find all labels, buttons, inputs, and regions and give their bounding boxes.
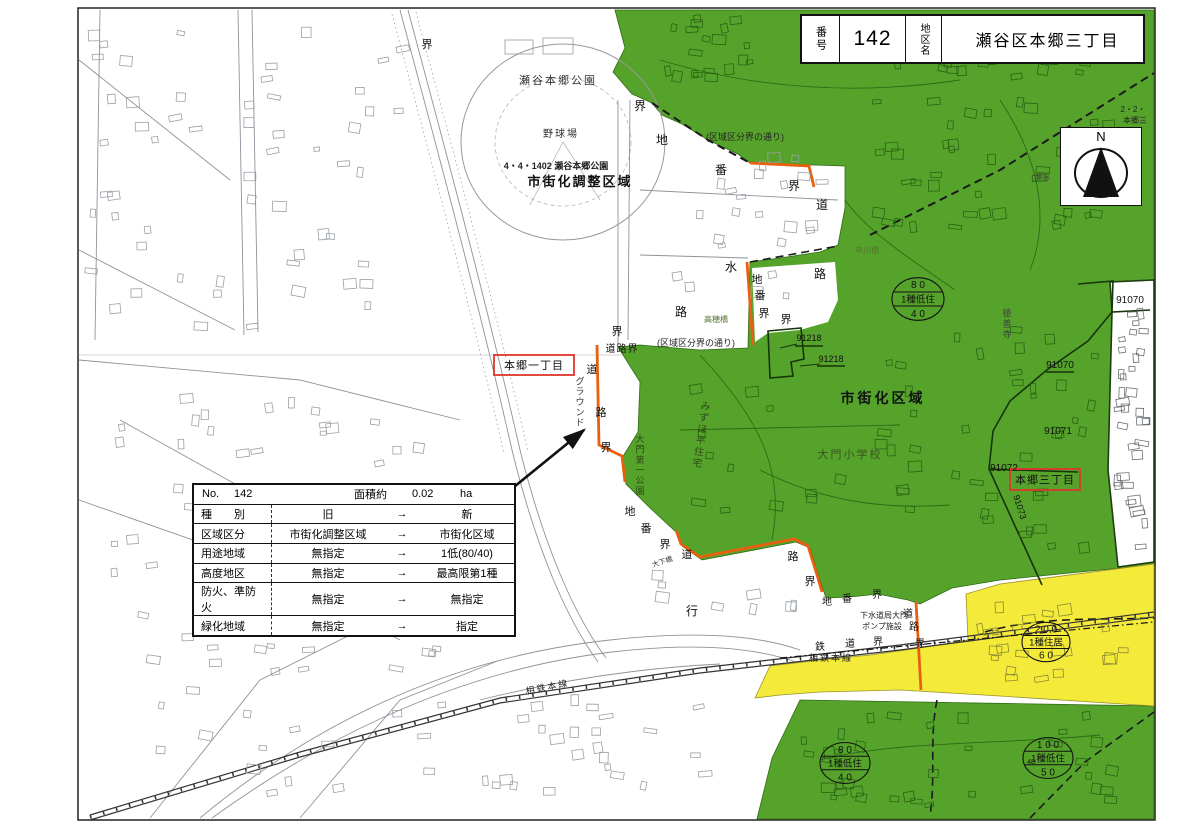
row-old-value: 無指定 xyxy=(272,616,384,635)
arrow-glyph: → xyxy=(384,544,420,563)
map-label: 91070 xyxy=(1116,295,1144,306)
arrow-glyph: → xyxy=(384,564,420,583)
map-sheet: 8 01種低住4 02 0 01種住居6 08 01種低住4 01 0 01種低… xyxy=(0,0,1200,829)
zoning-circle-text: 1種住居 xyxy=(1029,637,1063,649)
map-label: 番 xyxy=(755,289,766,302)
map-label: 道 xyxy=(903,607,913,620)
zoning-circle-text: 4 0 xyxy=(838,772,852,783)
map-label: 91070 xyxy=(1046,360,1074,371)
map-label: 界 xyxy=(660,538,671,551)
zoning-circle-text: 1種低住 xyxy=(828,758,862,770)
map-label: 野球場 xyxy=(543,127,579,140)
arrow-glyph: → xyxy=(384,524,420,543)
row-old-value: 無指定 xyxy=(272,583,384,615)
table-row: 種 別旧→新 xyxy=(194,504,514,524)
map-label: 界 xyxy=(805,575,816,588)
map-label: 地 xyxy=(822,595,832,608)
table-row-header: No.142面積約0.02ha xyxy=(194,485,514,504)
map-label: 徳善寺 xyxy=(1002,308,1011,340)
map-label: 番 xyxy=(641,522,652,535)
map-label: 番 xyxy=(715,163,727,177)
table-row: 防火、準防火無指定→無指定 xyxy=(194,582,514,615)
map-label: 界 xyxy=(759,307,770,320)
map-label: 路 xyxy=(788,550,799,563)
map-label: 道 xyxy=(682,547,693,561)
map-label: 2・2・ xyxy=(1121,105,1146,114)
map-label: 市街化区域 xyxy=(841,390,926,406)
map-label: 界 xyxy=(634,99,646,113)
map-label: 91218 xyxy=(796,333,821,343)
zoning-circle-text: 1種低住 xyxy=(901,294,935,306)
map-label: グラウンド xyxy=(575,375,584,427)
map-label: 界 xyxy=(422,38,433,51)
map-label: 下水道局大門 xyxy=(860,610,908,620)
map-label: (区域区分界の通り) xyxy=(706,131,784,142)
map-label: 91071 xyxy=(1044,426,1072,437)
map-label: 地 xyxy=(625,505,636,518)
row-new-value: 指定 xyxy=(420,616,514,635)
row-old-value: 無指定 xyxy=(272,544,384,563)
table-no-label: No. xyxy=(194,485,234,504)
map-label: 相鉄本線 xyxy=(809,652,853,663)
row-label: 用途地域 xyxy=(194,544,272,563)
map-label: 市街化調整区域 xyxy=(527,174,632,189)
zoning-change-table: No.142面積約0.02ha種 別旧→新区域区分市街化調整区域→市街化区域用途… xyxy=(192,483,516,637)
map-label: 48 xyxy=(1027,759,1035,766)
map-label: 界 xyxy=(872,589,882,601)
table-area-value: 0.02 xyxy=(412,485,460,504)
table-row: 区域区分市街化調整区域→市街化区域 xyxy=(194,523,514,543)
zoning-circle-text: 8 0 xyxy=(838,745,852,756)
map-label: 界 xyxy=(788,179,800,193)
north-arrow-icon xyxy=(1061,128,1141,204)
map-label: 瀬谷本郷公園 xyxy=(519,73,597,87)
row-label: 種 別 xyxy=(194,505,272,524)
zoning-circle-text: 8 0 xyxy=(911,280,925,291)
row-label: 区域区分 xyxy=(194,524,272,543)
row-new-value: 新 xyxy=(420,505,514,524)
placename-red-box-label: 本郷三丁目 xyxy=(1015,473,1075,487)
urbanization-zone-green-south xyxy=(757,700,1154,819)
title-number-label: 番号 xyxy=(802,16,840,62)
map-label: ポンプ施設 xyxy=(862,621,902,631)
row-new-value: 最高限第1種 xyxy=(420,564,514,583)
map-canvas: 8 01種低住4 02 0 01種住居6 08 01種低住4 01 0 01種低… xyxy=(0,0,1200,829)
map-label: 地 xyxy=(656,133,668,147)
zoning-circle-text: 4 0 xyxy=(911,309,925,320)
title-number-value: 142 xyxy=(840,16,906,62)
map-label: 本郷三 xyxy=(1123,115,1147,125)
map-label: 道 xyxy=(845,637,855,650)
map-label: 道 xyxy=(587,362,598,376)
map-label: 道路界 xyxy=(606,342,639,355)
map-label: 界 xyxy=(915,638,925,650)
zoning-circle-text: 1 0 0 xyxy=(1037,740,1060,751)
row-new-value: 市街化区域 xyxy=(420,524,514,543)
zoning-circle-text: 6 0 xyxy=(1039,651,1053,662)
map-label: 水 xyxy=(725,260,737,274)
map-label: 界 xyxy=(781,313,792,326)
row-old-value: 無指定 xyxy=(272,564,384,583)
row-label: 防火、準防火 xyxy=(194,583,272,615)
row-old-value: 市街化調整区域 xyxy=(272,524,384,543)
map-label: 4・4・1402 瀬谷本郷公園 xyxy=(504,160,609,171)
arrow-glyph: → xyxy=(384,616,420,635)
zoning-circle-text: 5 0 xyxy=(1041,767,1055,778)
row-new-value: 1低(80/40) xyxy=(420,544,514,563)
map-label: 路 xyxy=(909,620,919,633)
table-row: 用途地域無指定→1低(80/40) xyxy=(194,543,514,563)
map-label: 路 xyxy=(596,406,607,419)
title-district-label: 地区名 xyxy=(906,16,942,62)
arrow-glyph: → xyxy=(384,583,420,615)
zoning-circle-text: 1種低住 xyxy=(1031,753,1065,765)
table-row: 緑化地域無指定→指定 xyxy=(194,615,514,635)
table-area-label: 面積約 xyxy=(354,485,412,504)
map-label: 界 xyxy=(873,636,883,648)
map-label: 高穂橋 xyxy=(704,314,728,324)
map-label: 91218 xyxy=(818,354,843,364)
map-label: 地 xyxy=(752,273,763,286)
map-label: 瀬谷 xyxy=(1034,172,1050,182)
table-row: 高度地区無指定→最高限第1種 xyxy=(194,563,514,583)
map-label: 鉄 xyxy=(815,640,825,653)
placename-red-box-label: 本郷一丁目 xyxy=(504,358,564,372)
title-box: 番号 142 地区名 瀬谷区本郷三丁目 xyxy=(800,14,1145,64)
map-label: 道 xyxy=(816,198,828,212)
map-label: 行 xyxy=(686,604,698,618)
map-label: 大門小学校 xyxy=(818,447,883,461)
map-label: 界 xyxy=(601,441,612,454)
map-label: 路 xyxy=(675,304,687,319)
row-label: 高度地区 xyxy=(194,564,272,583)
row-label: 緑化地域 xyxy=(194,616,272,635)
row-new-value: 無指定 xyxy=(420,583,514,615)
map-label: 路 xyxy=(814,266,826,281)
north-arrow-box: N xyxy=(1060,127,1142,206)
title-district-value: 瀬谷区本郷三丁目 xyxy=(942,16,1143,62)
map-label: (区域区分界の通り) xyxy=(657,337,735,348)
map-label: 界 xyxy=(612,325,623,338)
zoning-circle-text: 2 0 0 xyxy=(1035,624,1058,635)
row-old-value: 旧 xyxy=(272,505,384,524)
map-label: 中川橋 xyxy=(855,245,879,255)
map-label: 大門第一公園 xyxy=(635,433,644,496)
table-area-unit: ha xyxy=(460,485,472,504)
map-label: 番 xyxy=(842,593,852,605)
map-label: 91072 xyxy=(990,463,1018,474)
table-no-value: 142 xyxy=(234,485,354,504)
arrow-glyph: → xyxy=(384,505,420,524)
